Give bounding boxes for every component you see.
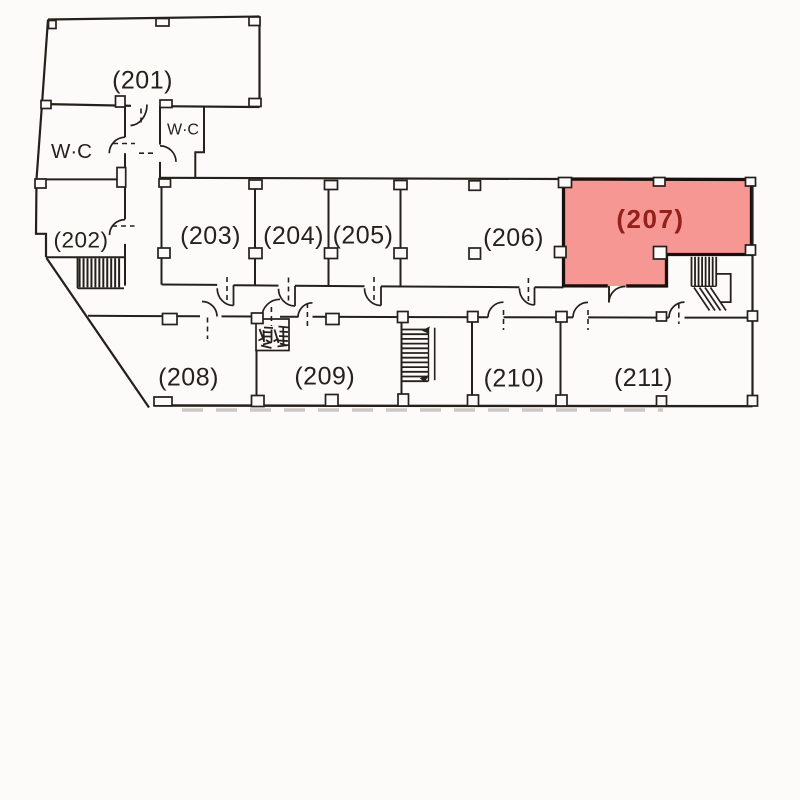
svg-text:W·C: W·C (167, 122, 199, 139)
svg-text:(201): (201) (112, 67, 173, 95)
svg-text:(203): (203) (180, 222, 241, 250)
svg-text:(207): (207) (616, 204, 684, 234)
svg-text:(205): (205) (333, 222, 394, 250)
svg-text:(211): (211) (614, 364, 673, 392)
svg-text:W·C: W·C (51, 140, 92, 163)
svg-text:(202): (202) (53, 227, 108, 252)
svg-text:(204): (204) (263, 222, 324, 250)
svg-text:(209): (209) (294, 363, 355, 391)
svg-text:(206): (206) (483, 224, 544, 252)
svg-text:(208): (208) (158, 364, 219, 392)
svg-text:(210): (210) (484, 365, 545, 393)
